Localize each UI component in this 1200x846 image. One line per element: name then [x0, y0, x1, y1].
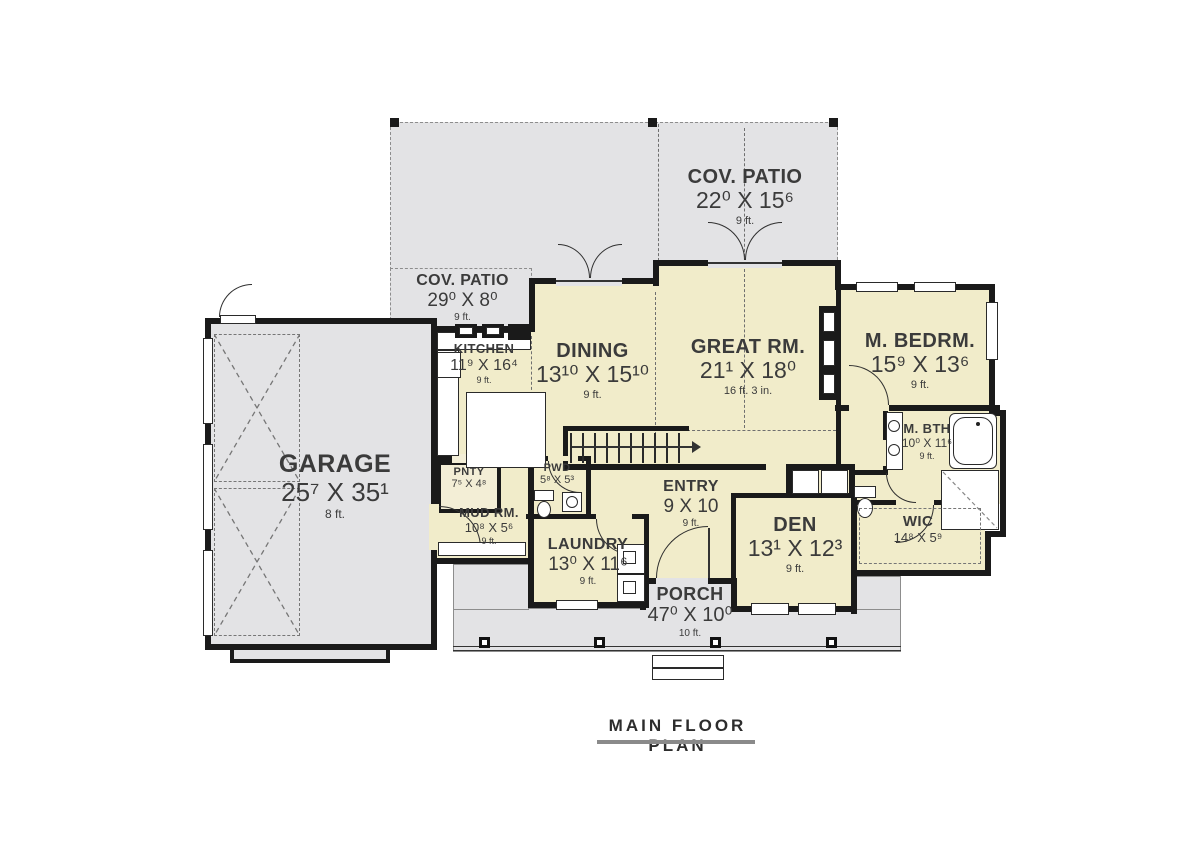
room-name: MUD RM.: [443, 506, 535, 521]
porch-post: [826, 637, 837, 648]
room-label-porch: PORCH 47⁰ X 10⁰ 10 ft.: [630, 584, 750, 639]
porch-post-core: [829, 640, 834, 645]
room-name: DINING: [530, 340, 655, 362]
stair-tread-hatch: [570, 433, 682, 463]
room-label-laundry: LAUNDRY 13⁰ X 11⁶ 9 ft.: [532, 536, 644, 587]
room-label-cov-patio-top: COV. PATIO 22⁰ X 15⁶ 9 ft.: [655, 166, 835, 227]
door-threshold: [556, 280, 622, 282]
porch-post: [479, 637, 490, 648]
room-label-den: DEN 13¹ X 12³ 9 ft.: [740, 514, 850, 575]
range-top: [459, 327, 473, 335]
bathtub-basin: [953, 417, 993, 465]
room-height: 10 ft.: [630, 628, 750, 639]
porch-post: [594, 637, 605, 648]
room-dims: 25⁷ X 35¹: [250, 478, 420, 507]
toilet-tank: [854, 486, 876, 498]
room-dims: 9 X 10: [647, 496, 735, 517]
room-name: ENTRY: [647, 478, 735, 496]
room-name: M. BTH: [896, 422, 958, 437]
room-dims: 11⁹ X 16⁴: [432, 357, 536, 375]
oven-top: [486, 327, 500, 335]
room-name: GARAGE: [250, 450, 420, 478]
porch-post-core: [597, 640, 602, 645]
room-name: PWD: [531, 462, 583, 474]
room-height: 9 ft.: [532, 576, 644, 587]
room-name: LAUNDRY: [532, 536, 644, 554]
room-height: 9 ft.: [655, 215, 835, 227]
door-opening: [849, 405, 889, 411]
room-name: COV. PATIO: [395, 272, 530, 290]
room-dims: 22⁰ X 15⁶: [655, 188, 835, 214]
room-height: 9 ft.: [395, 312, 530, 323]
window: [751, 603, 789, 615]
sink: [566, 496, 578, 508]
room-dims: 47⁰ X 10⁰: [630, 604, 750, 626]
room-height: 9 ft.: [896, 451, 958, 461]
porch-slab-left: [453, 564, 529, 610]
front-steps: [652, 655, 724, 668]
room-dims: 13⁰ X 11⁶: [532, 554, 644, 575]
room-label-m-bth: M. BTH 10⁰ X 11⁶ 9 ft.: [896, 422, 958, 461]
exterior-wall: [1000, 410, 1006, 537]
porch-post-core: [713, 640, 718, 645]
title-underline: [597, 740, 755, 744]
closet-door: [792, 470, 819, 494]
room-name: DEN: [740, 514, 850, 536]
room-label-dining: DINING 13¹⁰ X 15¹⁰ 9 ft.: [530, 340, 655, 401]
door-arc: [219, 284, 252, 317]
kitchen-island: [466, 392, 546, 468]
room-dims: 15⁹ X 13⁶: [845, 352, 995, 378]
room-dims: 10⁰ X 11⁶: [896, 437, 958, 450]
room-label-great-rm: GREAT RM. 21¹ X 18⁰ 16 ft. 3 in.: [660, 336, 836, 397]
ceiling-break-line: [682, 430, 836, 431]
floor-plan-canvas: COV. PATIO 22⁰ X 15⁶ 9 ft. COV. PATIO 29…: [0, 0, 1200, 846]
room-label-cov-patio-left: COV. PATIO 29⁰ X 8⁰ 9 ft.: [395, 272, 530, 323]
room-name: M. BEDRM.: [845, 330, 995, 352]
room-height: 16 ft. 3 in.: [660, 385, 836, 397]
interior-wall: [836, 410, 841, 466]
room-name: WIC: [868, 514, 968, 531]
garage-stoop: [230, 650, 390, 663]
tub-drain: [976, 422, 980, 426]
room-label-m-bedrm: M. BEDRM. 15⁹ X 13⁶ 9 ft.: [845, 330, 995, 391]
front-door-leaf: [708, 528, 710, 578]
room-name: GREAT RM.: [660, 336, 836, 358]
room-height: 9 ft.: [845, 379, 995, 391]
range-hood: [508, 324, 531, 340]
corner-block: [390, 118, 399, 127]
room-label-pwd: PWD 5⁸ X 5³: [531, 462, 583, 487]
stair-wall: [563, 426, 689, 431]
window: [798, 603, 836, 615]
toilet-bowl: [537, 501, 551, 518]
garage-door-opening: [203, 444, 213, 530]
room-dims: 5⁸ X 5³: [531, 474, 583, 486]
room-height: 9 ft.: [443, 536, 535, 546]
room-height: 9 ft.: [530, 389, 655, 401]
interior-wall: [586, 456, 591, 519]
exterior-wall: [851, 498, 857, 614]
room-dims: 7⁵ X 4⁸: [439, 478, 499, 490]
room-name: PNTY: [439, 466, 499, 478]
window: [856, 282, 898, 292]
room-height: 8 ft.: [250, 508, 420, 521]
room-label-mud-rm: MUD RM. 10⁸ X 5⁶ 9 ft.: [443, 506, 535, 546]
room-dims: 10⁸ X 5⁶: [443, 521, 535, 536]
door-threshold: [708, 262, 782, 264]
stair-rail-line: [572, 446, 692, 448]
room-height: 9 ft.: [432, 375, 536, 385]
window: [914, 282, 956, 292]
exterior-wall: [851, 570, 991, 576]
room-name: KITCHEN: [432, 342, 536, 357]
fireplace-niche: [823, 312, 835, 332]
room-label-garage: GARAGE 25⁷ X 35¹ 8 ft.: [250, 450, 420, 522]
room-label-kitchen: KITCHEN 11⁹ X 16⁴ 9 ft.: [432, 342, 536, 386]
plan-title: MAIN FLOOR PLAN: [595, 716, 760, 756]
room-height: 9 ft.: [740, 563, 850, 575]
room-label-entry: ENTRY 9 X 10 9 ft.: [647, 478, 735, 529]
room-dims: 13¹ X 12³: [740, 536, 850, 562]
exterior-wall: [431, 558, 534, 564]
porch-post-core: [482, 640, 487, 645]
room-dims: 29⁰ X 8⁰: [395, 290, 530, 311]
garage-door-opening: [203, 550, 213, 636]
corner-block: [829, 118, 838, 127]
window: [556, 600, 598, 610]
room-name: PORCH: [630, 584, 750, 604]
garage-door-opening: [203, 338, 213, 424]
stair-direction-arrow: [692, 441, 701, 453]
room-label-wic: WIC 14⁸ X 5⁹: [868, 514, 968, 545]
interior-wall: [563, 464, 766, 470]
toilet-tank: [534, 490, 554, 501]
room-label-pntry: PNTY 7⁵ X 4⁸: [439, 466, 499, 491]
corner-block: [648, 118, 657, 127]
porch-slab-right: [853, 576, 901, 610]
room-name: COV. PATIO: [655, 166, 835, 188]
room-dims: 21¹ X 18⁰: [660, 358, 836, 384]
room-height: 9 ft.: [647, 518, 735, 529]
closet-door: [821, 470, 848, 494]
room-dims: 14⁸ X 5⁹: [868, 531, 968, 546]
front-steps: [652, 668, 724, 680]
room-dims: 13¹⁰ X 15¹⁰: [530, 362, 655, 388]
interior-wall: [851, 470, 888, 475]
